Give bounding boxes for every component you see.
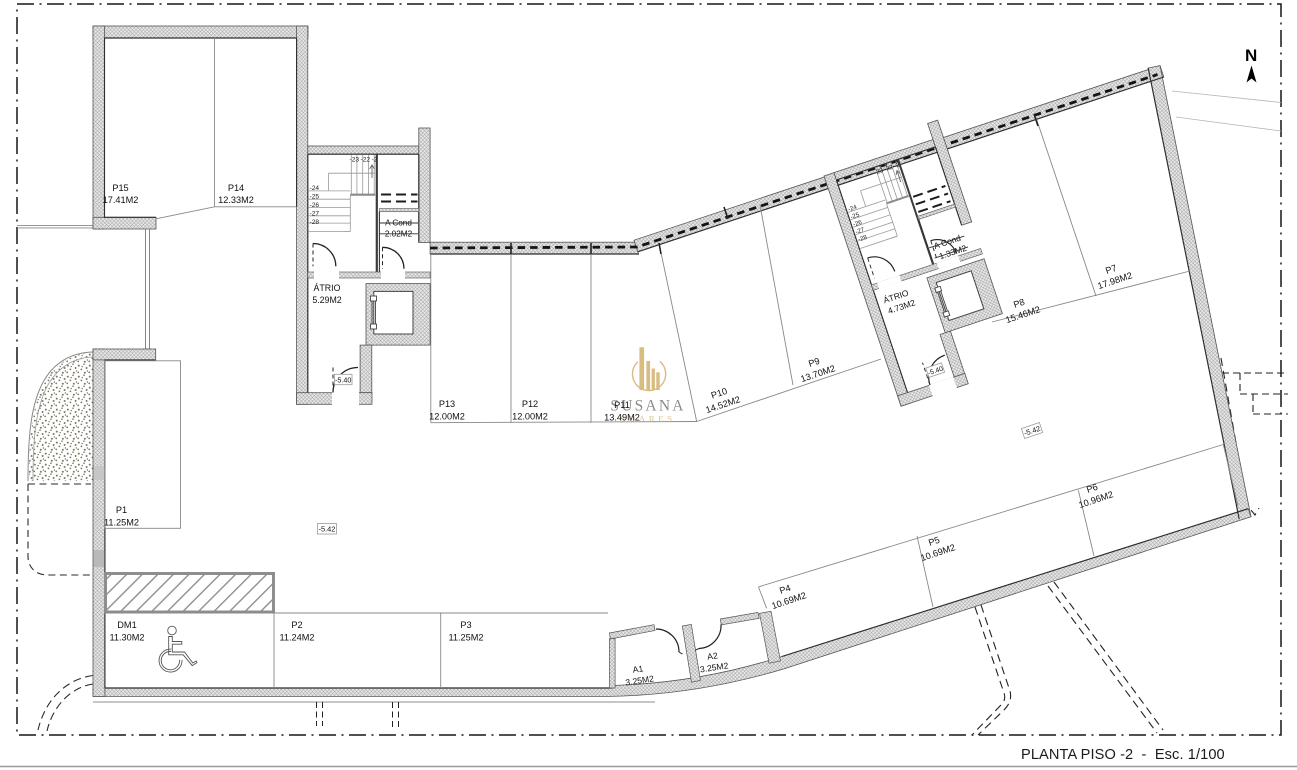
svg-text:-23: -23 xyxy=(350,157,360,164)
svg-text:-5.40: -5.40 xyxy=(335,375,351,384)
svg-text:11.30M2: 11.30M2 xyxy=(109,633,144,643)
svg-text:5.29M2: 5.29M2 xyxy=(312,295,341,305)
svg-text:12.00M2: 12.00M2 xyxy=(512,412,548,422)
svg-text:A2: A2 xyxy=(706,650,718,661)
svg-text:P14: P14 xyxy=(228,183,244,193)
svg-text:P3: P3 xyxy=(460,620,471,630)
svg-text:DM1: DM1 xyxy=(117,620,136,630)
svg-text:13.49M2: 13.49M2 xyxy=(604,413,640,423)
svg-text:-25: -25 xyxy=(310,194,320,201)
svg-text:12.00M2: 12.00M2 xyxy=(429,412,465,422)
svg-text:-26: -26 xyxy=(310,202,320,209)
svg-text:P12: P12 xyxy=(522,399,538,409)
svg-text:N: N xyxy=(1245,46,1257,65)
svg-text:-28: -28 xyxy=(310,219,320,226)
svg-text:11.25M2: 11.25M2 xyxy=(448,633,483,643)
svg-text:-22: -22 xyxy=(361,157,371,164)
svg-text:12.33M2: 12.33M2 xyxy=(218,195,254,205)
svg-text:PLANTA PISO -2 - Esc. 1/100: PLANTA PISO -2 - Esc. 1/100 xyxy=(1021,747,1225,763)
svg-text:A1: A1 xyxy=(632,663,644,674)
svg-text:11.24M2: 11.24M2 xyxy=(279,633,314,643)
svg-text:P2: P2 xyxy=(291,620,302,630)
svg-text:P1: P1 xyxy=(116,505,127,515)
svg-text:-27: -27 xyxy=(310,210,320,217)
svg-text:11.25M2: 11.25M2 xyxy=(104,518,139,528)
svg-text:-24: -24 xyxy=(310,185,320,192)
svg-text:P13: P13 xyxy=(439,399,455,409)
svg-text:-5.42: -5.42 xyxy=(319,525,336,534)
svg-text:P11: P11 xyxy=(614,400,630,410)
svg-text:P15: P15 xyxy=(112,183,128,193)
svg-text:ÁTRIO: ÁTRIO xyxy=(314,283,341,293)
svg-text:17.41M2: 17.41M2 xyxy=(103,195,139,205)
svg-text:-2: -2 xyxy=(372,157,378,164)
